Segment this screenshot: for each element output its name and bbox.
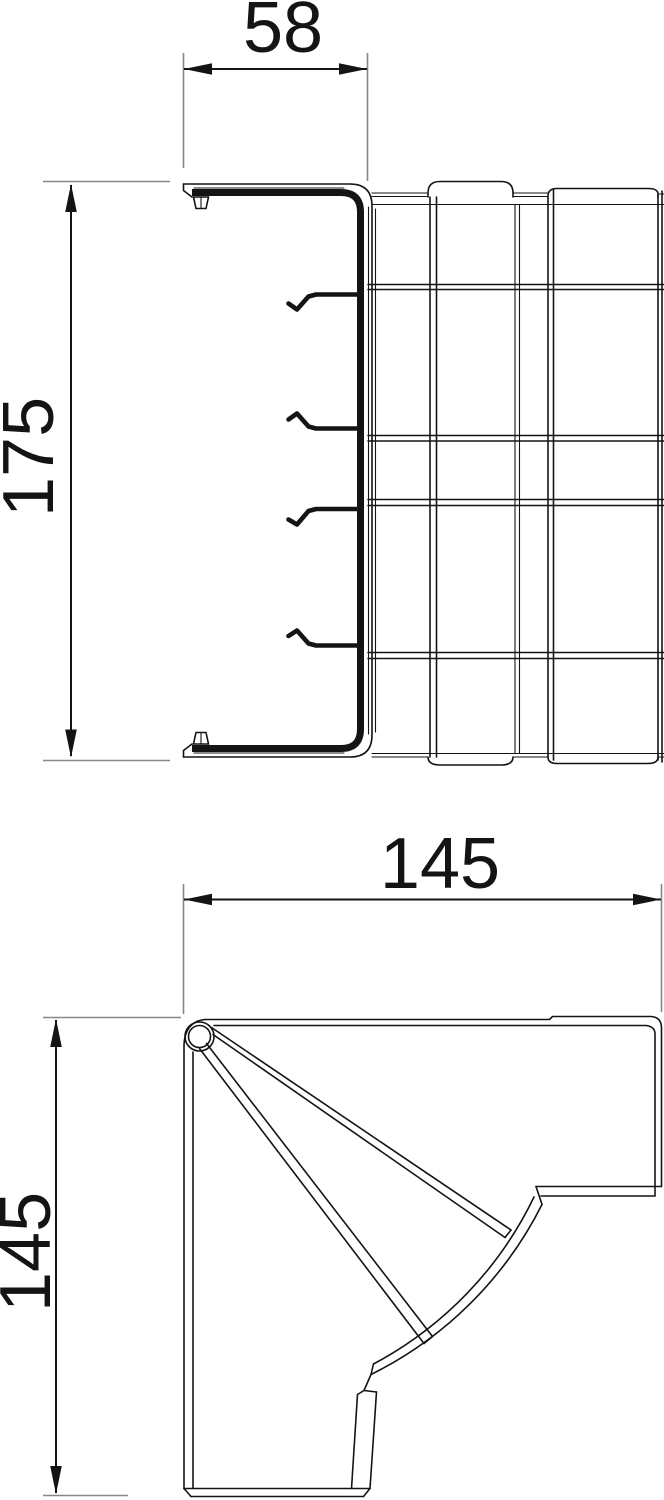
cover-arc-band	[358, 1197, 543, 1395]
hook-1	[289, 295, 359, 310]
outline-top-right-inner	[214, 1026, 655, 1197]
technical-drawing: 58 175	[0, 0, 664, 1500]
plan-view: 145 145	[0, 824, 662, 1497]
dim-label-58: 58	[243, 0, 323, 68]
arrowhead-up-icon	[65, 184, 77, 212]
dimension-145-height: 145	[0, 1018, 181, 1496]
dim-label-145-width: 145	[380, 824, 500, 904]
arrowhead-left-icon	[184, 894, 212, 906]
retaining-hooks	[289, 295, 359, 646]
dimension-175: 175	[0, 182, 170, 761]
channel-right-outer	[370, 1392, 377, 1489]
dimension-58: 58	[184, 0, 368, 181]
arrowhead-right-icon	[633, 894, 661, 906]
finger-lower	[207, 1044, 433, 1337]
profile-outer-contour	[184, 184, 373, 757]
arrowhead-right-icon	[339, 63, 367, 75]
finger-upper	[212, 1028, 512, 1231]
arrowhead-down-icon	[65, 730, 77, 758]
arrowhead-up-icon	[50, 1019, 62, 1047]
profile-wall	[192, 193, 361, 749]
lid-lip-bottom	[184, 744, 193, 757]
corner-piece	[184, 1017, 662, 1497]
arrowhead-left-icon	[184, 63, 212, 75]
outline-top-right	[205, 1017, 662, 1187]
hook-2	[289, 414, 359, 429]
lid-lip-top	[184, 184, 193, 197]
hook-3	[289, 509, 359, 525]
hook-4	[289, 631, 359, 646]
trunking-body	[368, 182, 664, 766]
dim-label-175: 175	[0, 397, 69, 517]
arrowhead-down-icon	[50, 1466, 62, 1494]
dimension-145-width: 145	[184, 824, 662, 1014]
technical-drawing-page: 58 175	[0, 0, 664, 1500]
profile-view: 58 175	[0, 0, 664, 765]
c-profile	[184, 184, 376, 757]
outline-left	[184, 1020, 205, 1489]
channel-right-inner	[352, 1395, 358, 1489]
